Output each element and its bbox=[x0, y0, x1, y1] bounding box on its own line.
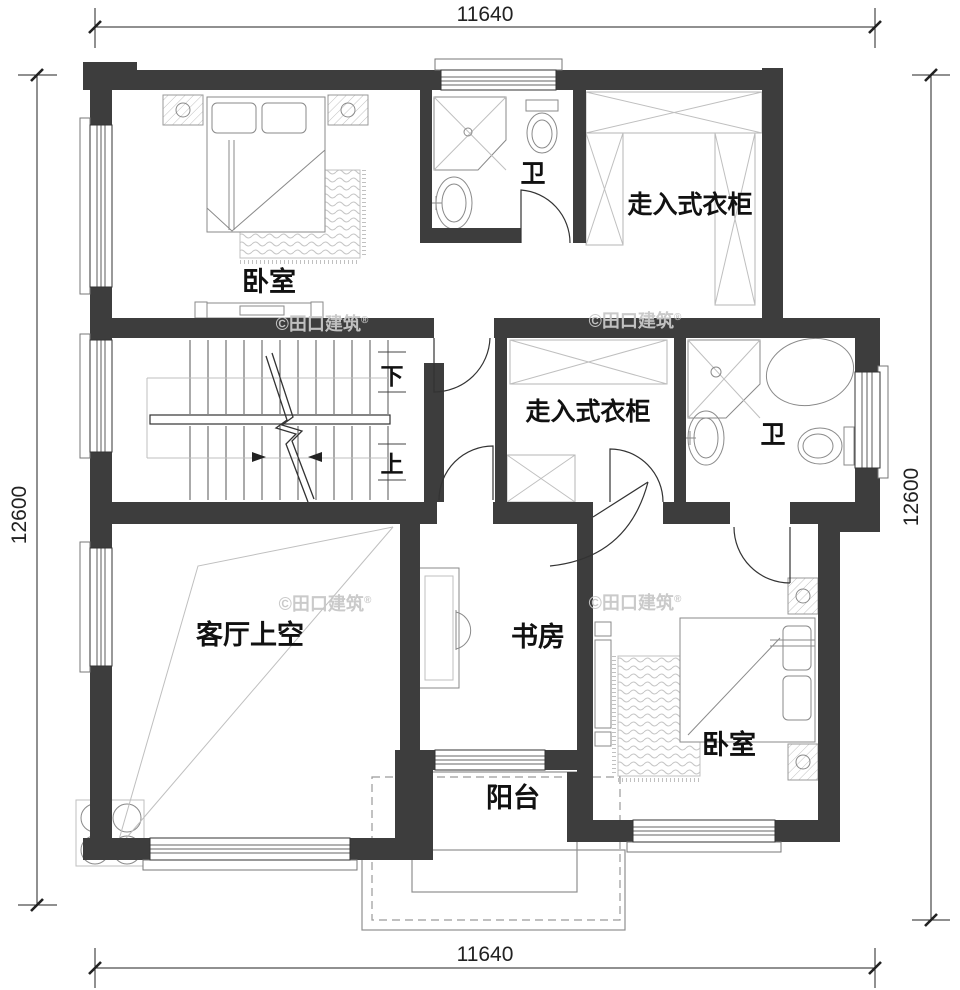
toilet bbox=[527, 113, 557, 153]
label-study: 书房 bbox=[511, 622, 565, 652]
window-right-bath bbox=[855, 372, 880, 468]
door-closet-mid bbox=[610, 449, 663, 502]
dim-bottom-value: 11640 bbox=[457, 943, 514, 966]
wall-bedroom-bottom-right bbox=[818, 502, 840, 842]
nightstand bbox=[163, 95, 203, 125]
dim-right-value: 12600 bbox=[900, 468, 923, 526]
floor-plan-page: 11640 11640 12600 12600 卧室 卫 走入式衣柜 走入式衣柜… bbox=[0, 0, 960, 990]
label-bedroom-bottom: 卧室 bbox=[702, 729, 756, 760]
faucet bbox=[432, 196, 442, 210]
wall-living-bottom-a bbox=[83, 838, 150, 860]
label-closet-top: 走入式衣柜 bbox=[627, 190, 752, 219]
wall-bedroom-top-right bbox=[420, 90, 432, 243]
label-closet-mid: 走入式衣柜 bbox=[525, 397, 650, 426]
window-top-bath bbox=[441, 70, 556, 90]
floor-plan-canvas: 11640 11640 12600 12600 卧室 卫 走入式衣柜 走入式衣柜… bbox=[0, 0, 960, 990]
study-furniture bbox=[417, 568, 471, 688]
wall-mid1-right bbox=[494, 318, 880, 338]
watermark: ©田口建筑® bbox=[276, 313, 369, 334]
dimension-right: 12600 bbox=[900, 69, 950, 926]
watermark: ©田口建筑® bbox=[589, 310, 682, 331]
label-bedroom-top: 卧室 bbox=[242, 266, 296, 297]
bathtub bbox=[760, 331, 860, 414]
door-bath-mid bbox=[734, 527, 790, 583]
wall-mid1-left bbox=[90, 318, 434, 338]
stairs bbox=[147, 340, 406, 502]
pillow bbox=[783, 676, 811, 720]
nightstand bbox=[788, 744, 818, 780]
pillow bbox=[783, 626, 811, 670]
wall-step-right bbox=[840, 502, 880, 532]
door-study bbox=[439, 446, 493, 500]
wall-closet-mid-left bbox=[495, 338, 507, 502]
watermark: ©田口建筑® bbox=[279, 593, 372, 614]
nightstand bbox=[328, 95, 368, 125]
wall-bedroom-bottom-a bbox=[567, 820, 633, 842]
label-bath-mid: 卫 bbox=[760, 421, 785, 449]
door-bath-top bbox=[521, 190, 570, 243]
stair-arrow bbox=[308, 452, 322, 462]
wall-bath-top-right bbox=[573, 90, 586, 243]
dimension-bottom: 11640 bbox=[89, 943, 881, 988]
label-stair-down: 下 bbox=[381, 363, 404, 389]
pillow bbox=[212, 103, 256, 133]
wall-living-bottom-b bbox=[350, 838, 433, 860]
toilet bbox=[798, 428, 842, 464]
dresser bbox=[595, 640, 611, 728]
chair bbox=[456, 610, 471, 650]
nightstand bbox=[788, 578, 818, 614]
wall-study-bottom-b bbox=[545, 750, 587, 770]
wall-living-right bbox=[400, 514, 420, 754]
label-stair-up: 上 bbox=[381, 451, 404, 477]
wall-bath-top-bottom bbox=[421, 228, 521, 243]
label-living: 客厅上空 bbox=[196, 619, 304, 650]
label-balcony: 阳台 bbox=[486, 782, 540, 813]
dimension-top: 11640 bbox=[89, 3, 881, 48]
toilet-tank bbox=[526, 100, 558, 111]
label-bath-top: 卫 bbox=[520, 160, 545, 188]
pillow bbox=[262, 103, 306, 133]
wall-mid2-a bbox=[90, 502, 437, 524]
watermark: ©田口建筑® bbox=[589, 592, 682, 613]
stair-rail bbox=[150, 415, 390, 424]
stair-arrow bbox=[252, 452, 266, 462]
wall-mid2-c bbox=[663, 502, 730, 524]
wall-closet-bath-divider bbox=[674, 338, 686, 502]
living-void-lines bbox=[116, 527, 393, 850]
dim-left-value: 12600 bbox=[8, 486, 31, 544]
wall-top bbox=[90, 70, 783, 90]
dimension-left: 12600 bbox=[8, 69, 57, 911]
wall-bedroom-bottom-b bbox=[775, 820, 840, 842]
wall-closet-top-right bbox=[762, 68, 783, 318]
toilet-tank bbox=[844, 427, 854, 465]
dim-top-value: 11640 bbox=[457, 3, 514, 26]
